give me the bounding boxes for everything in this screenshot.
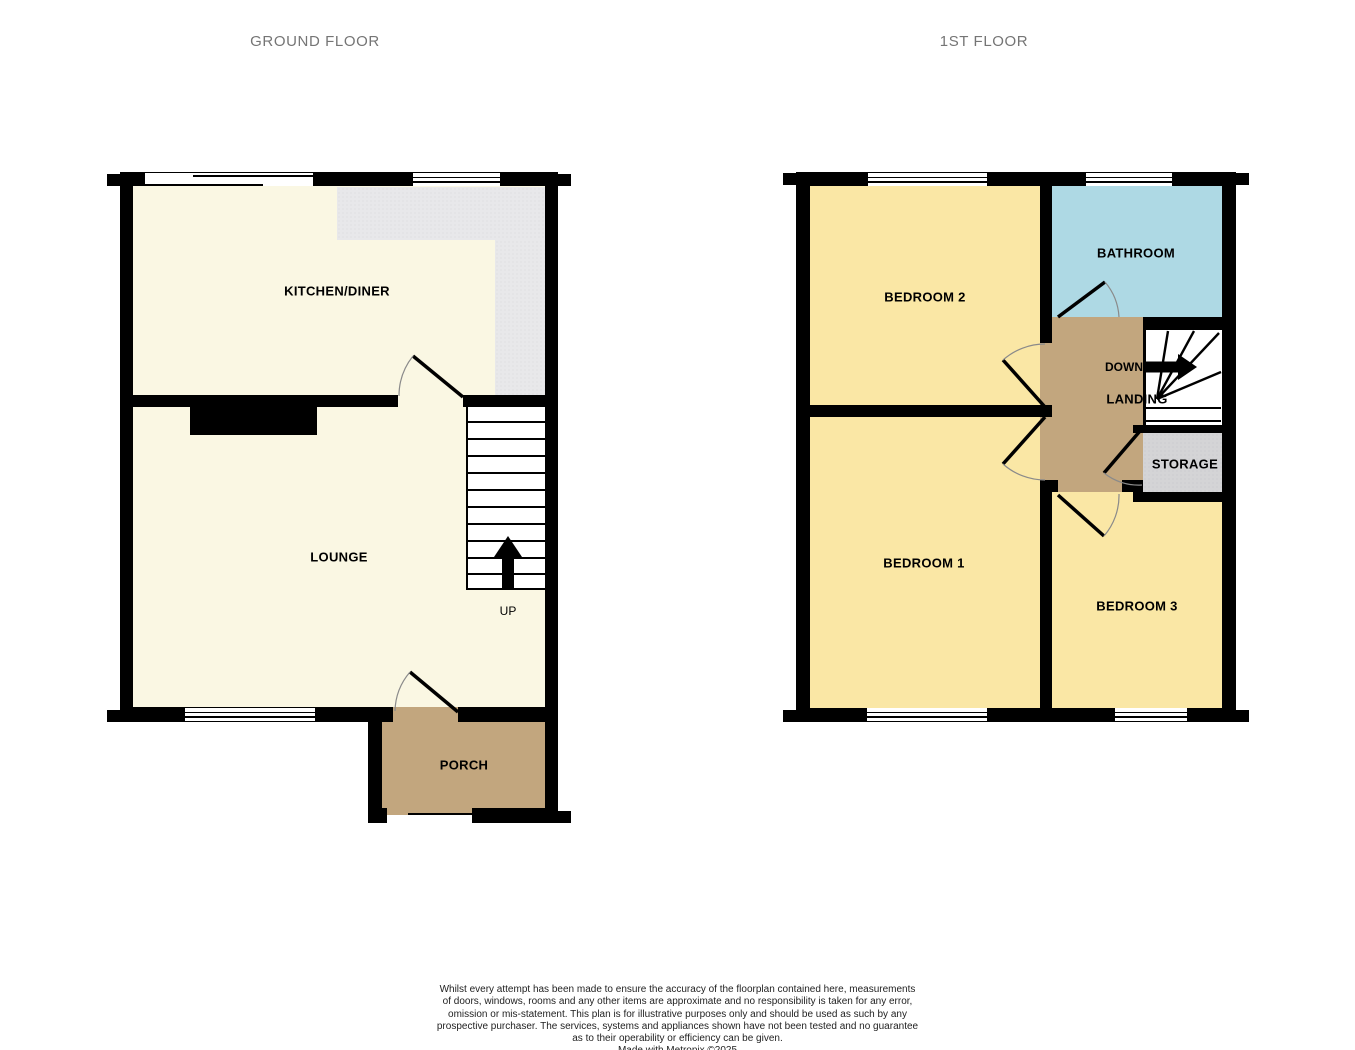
bedroom3-window	[1115, 708, 1187, 721]
storage-top-wall	[1133, 425, 1222, 433]
lounge-label: LOUNGE	[310, 550, 367, 565]
gf-corner-tick	[558, 174, 571, 186]
bathroom-door-opening	[1052, 317, 1120, 330]
bedroom3-label: BEDROOM 3	[1096, 599, 1177, 614]
ff-wall-stub	[1040, 405, 1052, 417]
gf-corner-tick	[107, 710, 120, 722]
ff-corner-tick	[783, 710, 796, 722]
metropix-credit: Made with Metropix ©2025	[0, 1045, 1355, 1050]
bathroom-label: BATHROOM	[1097, 246, 1175, 261]
kitchen-window	[145, 173, 313, 186]
kitchen-window	[413, 173, 500, 186]
lounge-window	[185, 708, 315, 721]
storage-door-stub	[1133, 483, 1143, 502]
first-floor-title: 1ST FLOOR	[854, 33, 1114, 50]
chimney-breast	[190, 407, 317, 435]
bedroom1-label: BEDROOM 1	[883, 556, 964, 571]
disclaimer-line: prospective purchaser. The services, sys…	[0, 1021, 1355, 1033]
ff-corner-tick	[1236, 710, 1249, 722]
front-door-opening	[387, 815, 472, 823]
kitchen-counter-area	[495, 240, 545, 395]
porch-door-opening	[393, 707, 458, 722]
stairs-down-label: DOWN	[1105, 360, 1143, 374]
disclaimer-line: as to their operability or efficiency ca…	[0, 1033, 1355, 1045]
front-door-threshold	[408, 813, 472, 815]
kitchen-counter-area	[337, 187, 545, 240]
ff-wall-stub	[1040, 317, 1052, 343]
kitchen-door-opening	[398, 395, 463, 407]
disclaimer-line: omission or mis-statement. This plan is …	[0, 1009, 1355, 1021]
ff-corner-tick	[1236, 173, 1249, 185]
ground-floor-title: GROUND FLOOR	[185, 33, 445, 50]
ff-corner-tick	[783, 173, 796, 185]
porch-label: PORCH	[440, 758, 488, 773]
bedroom2-window	[868, 173, 987, 186]
bedroom2-label: BEDROOM 2	[884, 290, 965, 305]
floorplan-canvas: GROUND FLOOR 1ST FLOOR	[0, 0, 1355, 1050]
gf-staircase	[466, 407, 545, 590]
disclaimer-text: Whilst every attempt has been made to en…	[0, 984, 1355, 1050]
ff-staircase	[1145, 330, 1222, 427]
gf-corner-tick	[107, 174, 120, 186]
disclaimer-line: Whilst every attempt has been made to en…	[0, 984, 1355, 996]
landing-label: LANDING	[1106, 392, 1167, 407]
disclaimer-line: of doors, windows, rooms and any other i…	[0, 996, 1355, 1008]
ff-wall-stub	[1040, 480, 1058, 492]
gf-corner-tick	[558, 811, 571, 823]
stairs-up-label: UP	[500, 604, 517, 618]
kitchen-diner-label: KITCHEN/DINER	[284, 284, 390, 299]
storage-label: STORAGE	[1152, 457, 1218, 472]
storage-bottom-wall	[1133, 492, 1222, 502]
bedroom1-window	[867, 708, 987, 721]
bathroom-window	[1086, 173, 1172, 186]
